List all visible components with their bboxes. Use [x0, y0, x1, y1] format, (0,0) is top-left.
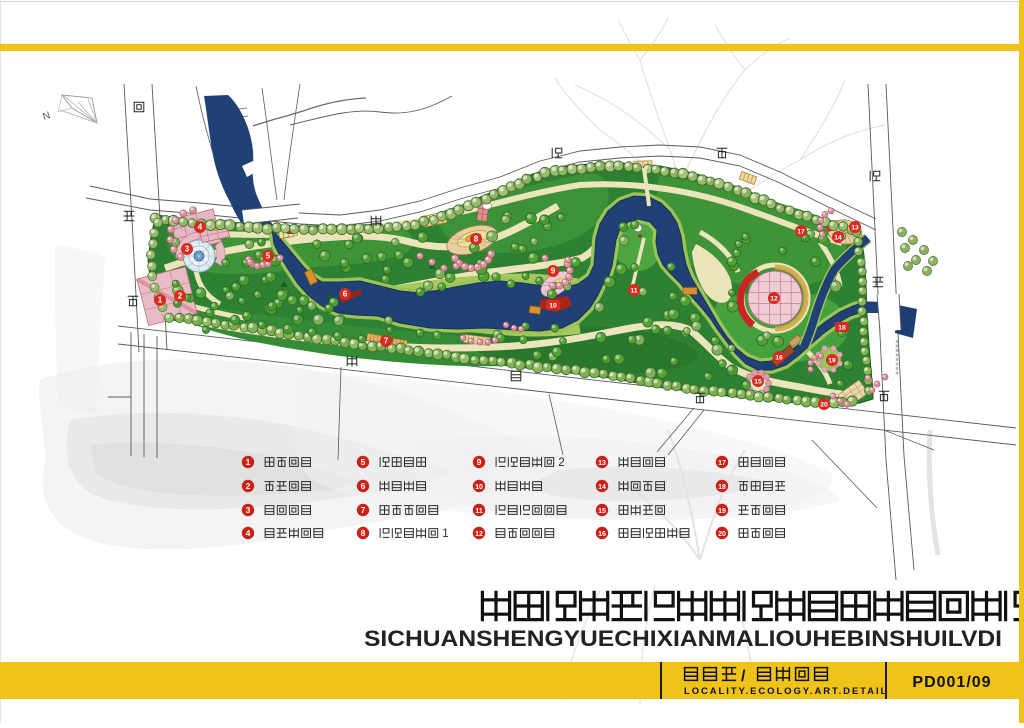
svg-text:16: 16 — [775, 355, 783, 362]
svg-text:2: 2 — [246, 481, 251, 491]
svg-text:LOCALITY.ECOLOGY.ART.DETAIL: LOCALITY.ECOLOGY.ART.DETAIL — [684, 686, 888, 697]
svg-text:10: 10 — [549, 303, 557, 310]
svg-text:10: 10 — [475, 484, 483, 491]
svg-text:PD001/09: PD001/09 — [912, 674, 991, 691]
svg-text:4: 4 — [198, 223, 203, 232]
svg-text:13: 13 — [851, 225, 859, 232]
svg-text:18: 18 — [838, 325, 846, 332]
svg-text:16: 16 — [598, 531, 606, 538]
svg-text:3: 3 — [246, 505, 251, 515]
svg-text:12: 12 — [770, 296, 778, 303]
svg-text:/: / — [741, 668, 746, 685]
svg-text:11: 11 — [475, 508, 483, 515]
svg-text:19: 19 — [828, 358, 836, 365]
svg-text:17: 17 — [718, 460, 726, 467]
svg-text:17: 17 — [797, 229, 805, 236]
svg-text:4: 4 — [246, 528, 251, 538]
svg-text:7: 7 — [361, 505, 366, 515]
svg-text:SICHUANSHENGYUECHIXIANMALIOUHE: SICHUANSHENGYUECHIXIANMALIOUHEBINSHUILVD… — [364, 626, 1002, 651]
svg-text:14: 14 — [834, 235, 842, 242]
svg-text:1: 1 — [158, 296, 163, 305]
svg-text:5: 5 — [361, 457, 366, 467]
svg-text:5: 5 — [266, 252, 271, 261]
svg-text:8: 8 — [361, 528, 366, 538]
svg-text:2: 2 — [178, 292, 183, 301]
svg-text:14: 14 — [598, 484, 606, 491]
svg-text:3: 3 — [185, 245, 190, 254]
svg-text:1: 1 — [442, 527, 448, 540]
svg-text:20: 20 — [820, 402, 828, 409]
svg-text:15: 15 — [598, 508, 606, 515]
svg-text:9: 9 — [551, 267, 556, 276]
svg-text:8: 8 — [474, 235, 479, 244]
svg-text:13: 13 — [598, 460, 606, 467]
svg-text:18: 18 — [718, 484, 726, 491]
svg-text:11: 11 — [630, 288, 637, 295]
svg-text:1: 1 — [246, 457, 251, 467]
svg-text:12: 12 — [475, 531, 483, 538]
svg-text:20: 20 — [718, 531, 726, 538]
svg-text:2: 2 — [558, 456, 564, 469]
svg-text:6: 6 — [361, 481, 366, 491]
svg-text:9: 9 — [477, 457, 482, 467]
svg-text:6: 6 — [343, 290, 348, 299]
svg-text:7: 7 — [384, 337, 389, 346]
svg-text:19: 19 — [718, 508, 726, 515]
svg-text:15: 15 — [754, 379, 762, 386]
